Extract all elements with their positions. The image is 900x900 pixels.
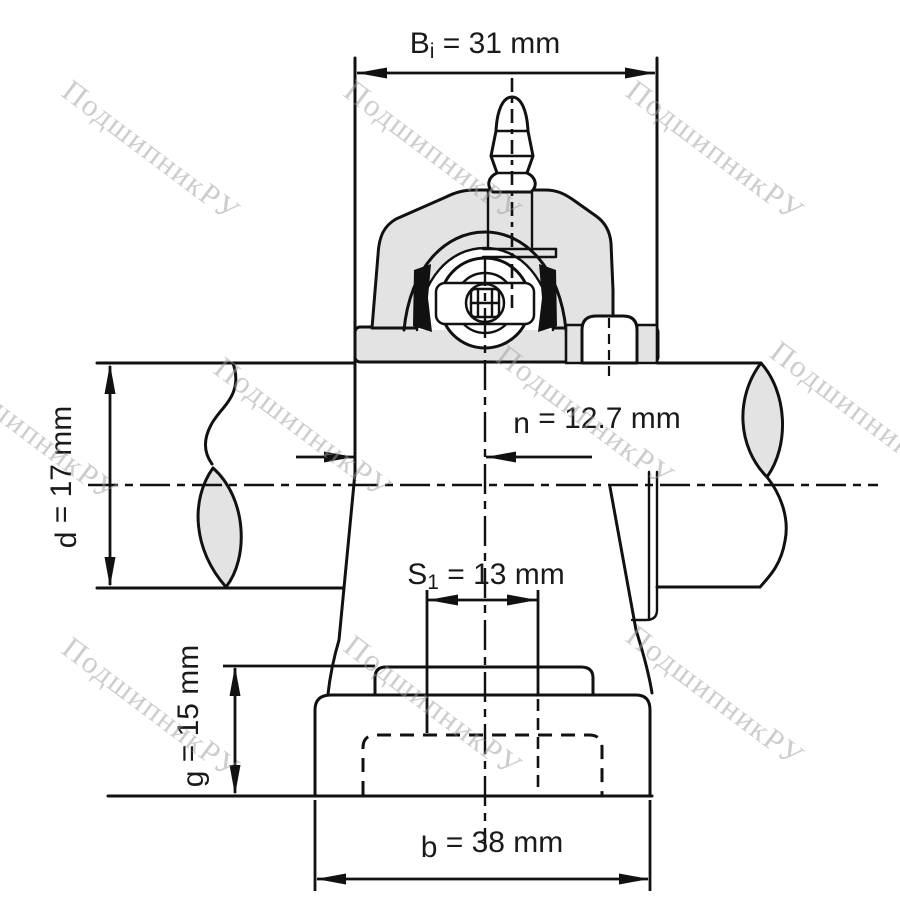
S1-label: S1 = 13 mm <box>407 558 565 594</box>
S1-arrow-left <box>428 595 458 606</box>
Bi-label: Bi = 31 mm <box>410 27 561 63</box>
shaft <box>97 363 786 588</box>
d-arrow-bottom <box>105 557 116 587</box>
watermark-text: ПодшипникРУ <box>56 630 247 786</box>
dimension-Bi: Bi = 31 mm <box>357 27 655 79</box>
watermark-text: ПодшипникРУ <box>764 334 900 490</box>
watermark-text: ПодшипникРУ <box>208 350 399 506</box>
pillar-right-ledge-outer <box>632 472 657 620</box>
locking-collar <box>566 316 657 380</box>
b-arrow-right <box>619 874 649 885</box>
S1-arrow-right <box>507 595 537 606</box>
housing-left-edge <box>328 58 355 694</box>
b-label: b = 38 mm <box>421 826 564 864</box>
dimension-b: b = 38 mm <box>315 800 650 891</box>
bearing-drawing: Bi = 31 mm n = 12.7 mm d = 17 mm S1 = 13… <box>0 0 900 900</box>
collar-left-section <box>566 325 583 363</box>
watermark-text: ПодшипникРУ <box>620 73 811 229</box>
collar-right-section <box>637 325 657 363</box>
n-arrow-right <box>486 452 516 463</box>
g-arrow-top <box>230 666 241 696</box>
watermark-text: ПодшипникРУ <box>56 73 247 229</box>
b-arrow-left <box>316 874 346 885</box>
d-arrow-top <box>105 364 116 394</box>
shaft-break-right-lens <box>743 363 783 477</box>
shaft-break-right-curve <box>760 477 786 587</box>
